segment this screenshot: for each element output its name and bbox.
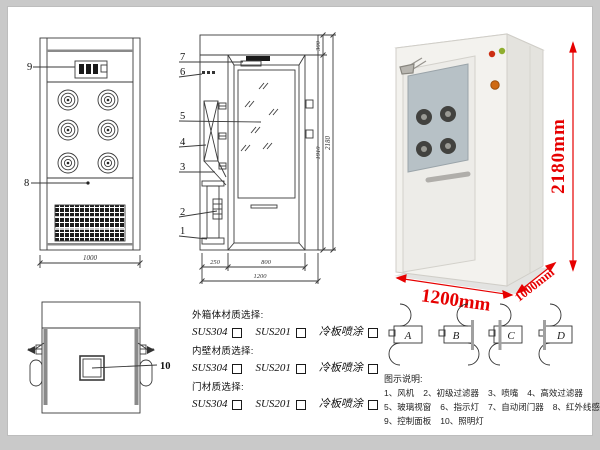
material-option-label: SUS201 <box>255 358 290 379</box>
side-view-drawing: 7 6 5 4 3 2 1 300 1910 2180 250 800 1200 <box>173 25 343 317</box>
dim-250: 250 <box>210 259 221 266</box>
door-config-D: D <box>536 302 582 366</box>
checkbox <box>232 364 242 374</box>
legend-item: 10、照明灯 <box>440 416 483 426</box>
legend-item: 7、自动闭门器 <box>488 402 544 412</box>
material-option-label: SUS201 <box>255 394 290 415</box>
legend-item: 1、风机 <box>384 388 414 398</box>
legend-item: 3、喷嘴 <box>488 388 518 398</box>
material-option-label: SUS304 <box>192 394 227 415</box>
legend-item: 6、指示灯 <box>440 402 479 412</box>
door-swing-arrow-right <box>138 343 155 386</box>
part-label-2: 2 <box>180 207 185 218</box>
checkbox <box>296 364 306 374</box>
handle-left <box>30 360 42 386</box>
legend-line: 1、风机2、初级过滤器3、喷嘴4、高效过滤器 <box>384 386 596 400</box>
config-letter: C <box>507 330 515 342</box>
orange-button <box>491 81 499 89</box>
dim-2180: 2180 <box>324 136 332 151</box>
material-option-label: SUS304 <box>192 322 227 343</box>
door-swing-arrow-left <box>27 343 44 386</box>
legend-item: 8、红外线感应器 <box>553 402 600 412</box>
green-indicator-light <box>499 48 505 54</box>
part-label-control-panel: 9 <box>27 62 32 73</box>
indicator-lights <box>202 71 215 74</box>
material-option-label: 冷板喷涂 <box>319 394 363 415</box>
door-config-legend: A B C D <box>386 302 582 366</box>
material-group-title: 外箱体材质选择: <box>192 309 384 322</box>
door-config-C: C <box>486 302 532 366</box>
part-label-7: 7 <box>180 52 185 63</box>
checkbox <box>296 328 306 338</box>
config-letter: B <box>453 330 460 342</box>
legend-line: 9、控制面板10、照明灯 <box>384 414 596 428</box>
door-config-A: A <box>386 302 432 366</box>
material-option-label: SUS201 <box>255 322 290 343</box>
red-indicator-light <box>489 51 495 57</box>
part-label-infrared: 8 <box>24 178 29 189</box>
photo-dim-height: 2180mm <box>548 118 569 194</box>
dim-1200: 1200 <box>254 273 268 280</box>
legend-item: 5、玻璃视窗 <box>384 402 431 412</box>
config-letter: D <box>556 330 565 342</box>
material-option-label: 冷板喷涂 <box>319 322 363 343</box>
material-options: 外箱体材质选择: SUS304 SUS201 冷板喷涂 内壁材质选择: SUS3… <box>192 309 384 417</box>
product-photo: 2180mm 1200mm 1000mm <box>380 14 595 324</box>
legend-title: 图示说明: <box>384 372 596 386</box>
dim-1000: 1000 <box>83 254 98 262</box>
door-config-B: B <box>436 302 482 366</box>
checkbox <box>368 364 378 374</box>
checkbox <box>368 400 378 410</box>
checkbox <box>232 400 242 410</box>
handle-right <box>140 360 152 386</box>
front-view-drawing: 9 8 1000 <box>20 28 170 278</box>
infrared-sensor-dot <box>86 181 89 184</box>
dim-1910: 1910 <box>315 146 322 160</box>
legend-item: 2、初级过滤器 <box>423 388 479 398</box>
dim-800: 800 <box>261 259 272 266</box>
checkbox <box>296 400 306 410</box>
top-view-drawing: 10 <box>26 296 194 444</box>
air-grille <box>55 205 125 241</box>
material-group-title: 门材质选择: <box>192 381 384 394</box>
parts-legend: 图示说明: 1、风机2、初级过滤器3、喷嘴4、高效过滤器 5、玻璃视窗6、指示灯… <box>384 372 596 428</box>
legend-line: 5、玻璃视窗6、指示灯7、自动闭门器8、红外线感应器 <box>384 400 596 414</box>
dim-300: 300 <box>315 40 322 52</box>
part-label-1: 1 <box>180 226 185 237</box>
part-label-3: 3 <box>180 162 185 173</box>
part-label-6: 6 <box>180 67 185 78</box>
material-option-label: 冷板喷涂 <box>319 358 363 379</box>
checkbox <box>232 328 242 338</box>
legend-item: 9、控制面板 <box>384 416 431 426</box>
photo-door <box>403 56 475 272</box>
part-label-lighting: 10 <box>160 361 171 372</box>
part-label-4: 4 <box>180 137 186 148</box>
config-letter: A <box>404 330 412 342</box>
legend-item: 4、高效过滤器 <box>527 388 583 398</box>
material-group-title: 内壁材质选择: <box>192 345 384 358</box>
checkbox <box>368 328 378 338</box>
material-option-label: SUS304 <box>192 358 227 379</box>
part-label-5: 5 <box>180 111 185 122</box>
